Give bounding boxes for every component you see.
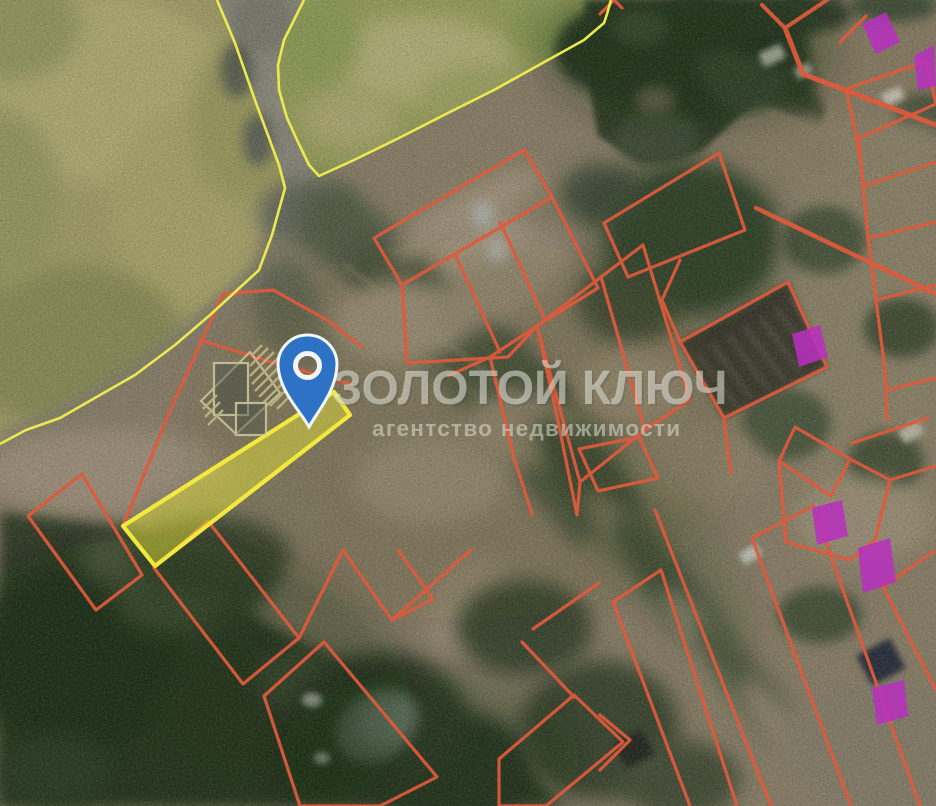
svg-text:агентство недвижимости: агентство недвижимости <box>372 416 681 441</box>
svg-text:ЗОЛОТОЙ КЛЮЧ: ЗОЛОТОЙ КЛЮЧ <box>332 360 727 415</box>
